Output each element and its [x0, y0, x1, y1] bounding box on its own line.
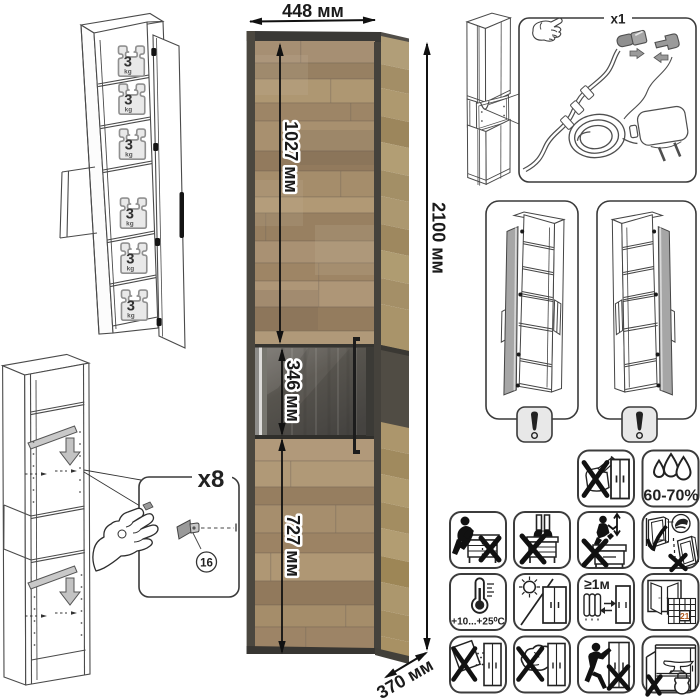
svg-text:21: 21 [680, 611, 690, 621]
svg-text:346 мм: 346 мм [283, 360, 303, 422]
svg-text:16: 16 [200, 558, 213, 570]
svg-text:727 мм: 727 мм [283, 515, 303, 577]
svg-text:60-70%: 60-70% [643, 488, 698, 505]
svg-text:≥1м: ≥1м [584, 576, 610, 592]
svg-text:x1: x1 [610, 12, 626, 27]
svg-text:+10...+25⁰C: +10...+25⁰C [451, 617, 505, 628]
svg-text:1027 мм: 1027 мм [281, 121, 301, 193]
svg-text:2100 мм: 2100 мм [429, 202, 449, 274]
svg-text:448 мм: 448 мм [282, 1, 344, 21]
svg-text:x8: x8 [198, 466, 225, 493]
